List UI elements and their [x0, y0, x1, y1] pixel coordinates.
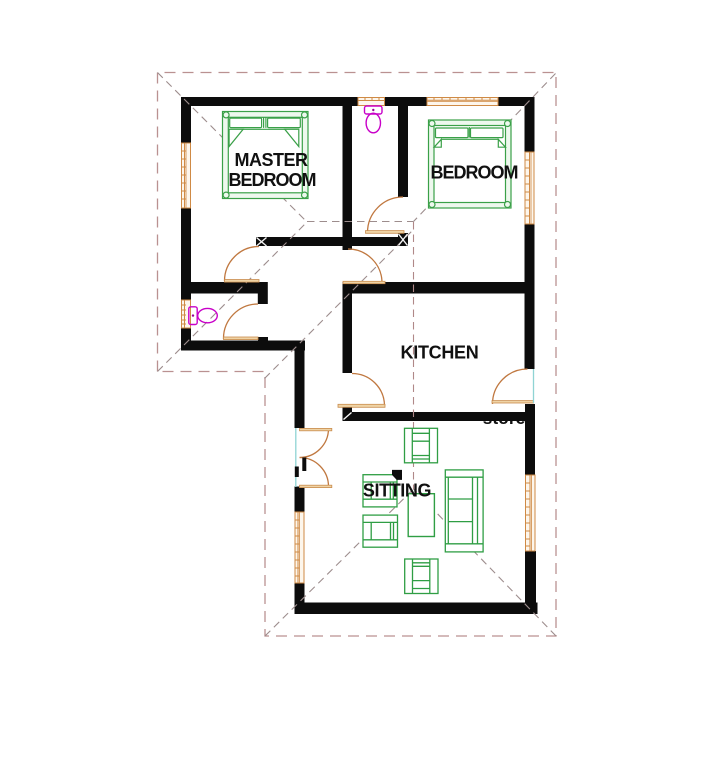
svg-text:MASTER: MASTER [235, 150, 309, 170]
svg-text:KITCHEN: KITCHEN [401, 343, 479, 363]
svg-text:BEDROOM: BEDROOM [229, 170, 316, 190]
svg-text:BEDROOM: BEDROOM [431, 163, 518, 183]
svg-text:SITTING: SITTING [363, 481, 431, 501]
